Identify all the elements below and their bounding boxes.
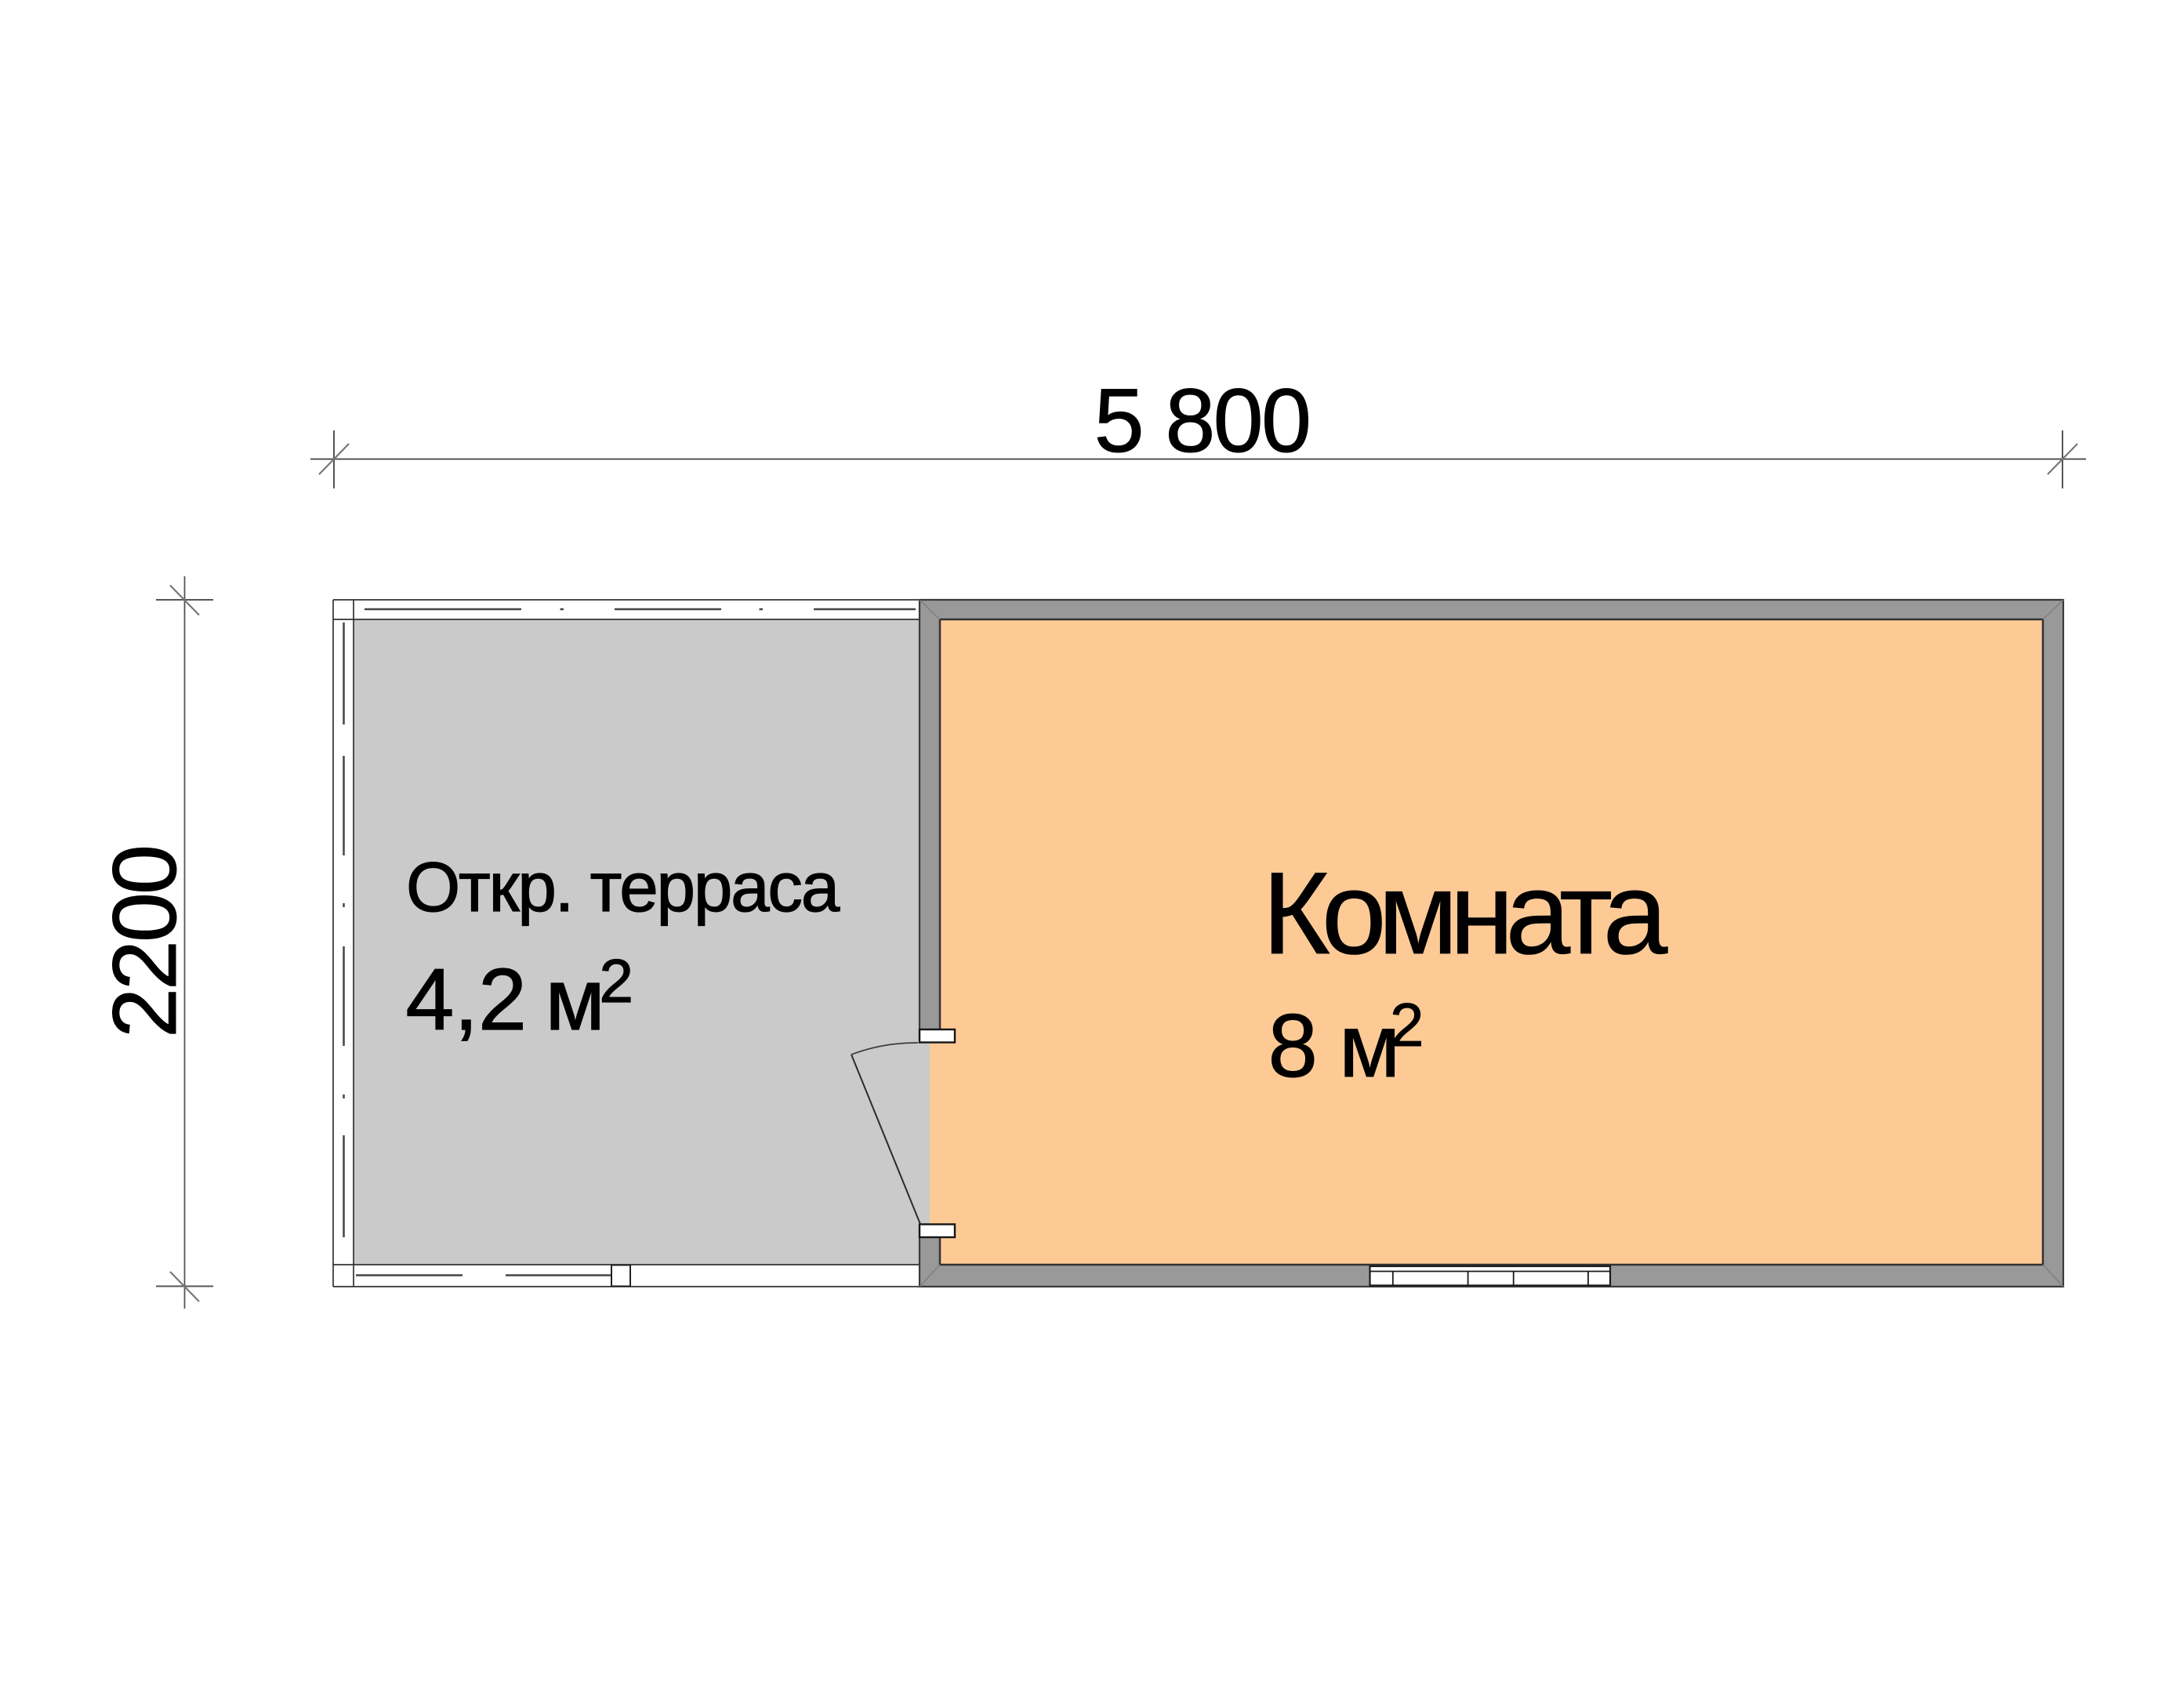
svg-text:2200: 2200 bbox=[95, 847, 195, 1038]
svg-text:Откр. терраса: Откр. терраса bbox=[406, 848, 840, 926]
svg-text:5 800: 5 800 bbox=[1094, 371, 1310, 471]
svg-text:Комната: Комната bbox=[1262, 848, 1668, 978]
svg-text:4,2м2: 4,2м2 bbox=[406, 946, 633, 1048]
